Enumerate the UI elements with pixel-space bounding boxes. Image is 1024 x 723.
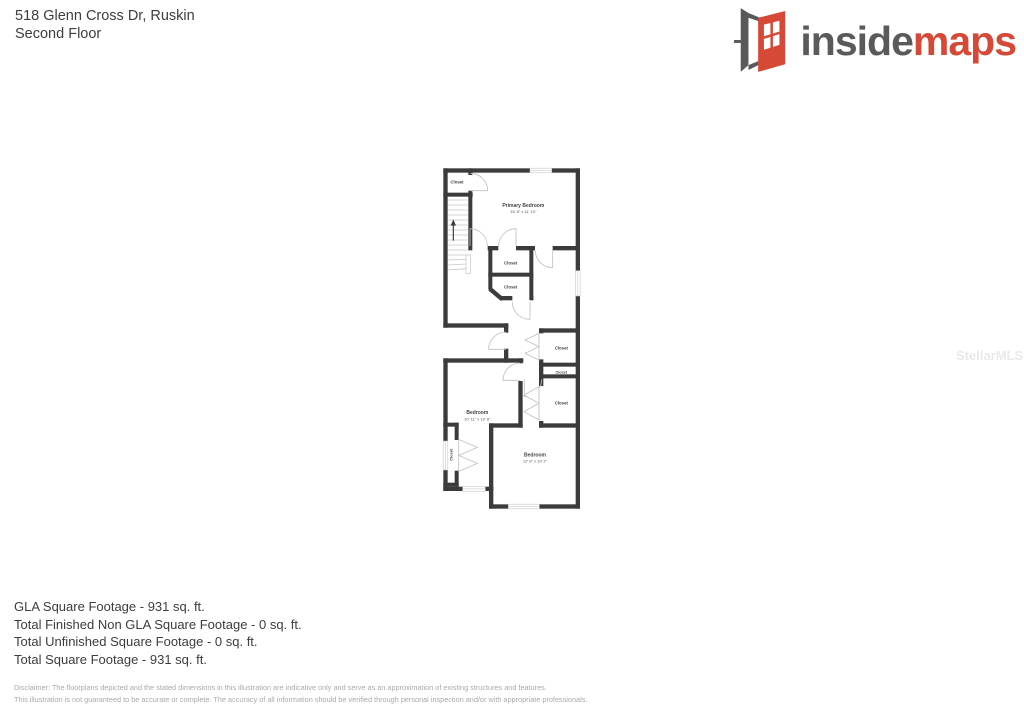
door-arc	[512, 302, 530, 319]
logo-text-maps: maps	[913, 18, 1016, 64]
logo-wordmark: insidemaps	[800, 21, 1016, 62]
address-line: 518 Glenn Cross Dr, Ruskin	[15, 8, 195, 26]
room-label-closet-top-left: Closet	[450, 180, 464, 185]
mls-watermark: StellarMLS	[956, 348, 1023, 363]
disclaimer-line-2: This illustration is not guaranteed to b…	[14, 694, 587, 706]
room-dims-bedroom-left: 10' 11" x 19' 8"	[464, 416, 491, 421]
disclaimer-line-1: Disclaimer: The floorplans depicted and …	[14, 682, 587, 694]
room-label-closet-right-2: Closet	[555, 370, 567, 374]
address-block: 518 Glenn Cross Dr, Ruskin Second Floor	[15, 8, 195, 43]
bifold-door	[525, 347, 539, 360]
door-arc	[470, 173, 487, 190]
logo-text-inside: inside	[800, 18, 912, 64]
bifold-door	[459, 439, 478, 455]
footage-line-unfinished: Total Unfinished Square Footage - 0 sq. …	[14, 633, 302, 651]
room-label-closet-right-3: Closet	[555, 401, 569, 406]
room-label-closet-right-1: Closet	[555, 345, 569, 350]
open-door-icon	[733, 6, 791, 76]
footage-summary: GLA Square Footage - 931 sq. ft. Total F…	[14, 598, 302, 668]
footage-line-gla: GLA Square Footage - 931 sq. ft.	[14, 598, 302, 616]
room-dims-primary-bedroom: 16' 8" x 11' 10"	[510, 209, 537, 214]
room-label-closet-mid-1: Closet	[504, 261, 518, 266]
room-label-closet-mid-2: Closet	[504, 285, 518, 290]
door-arc	[535, 250, 552, 267]
bifold-door	[525, 333, 539, 346]
door-arc	[489, 332, 506, 349]
room-label-closet-bedroom-left: Closet	[449, 448, 454, 461]
room-label-primary-bedroom: Primary Bedroom	[502, 203, 545, 209]
footage-line-non-gla: Total Finished Non GLA Square Footage - …	[14, 616, 302, 634]
room-dims-bedroom-right: 12' 9" x 19' 2"	[523, 459, 548, 464]
bifold-doors	[459, 333, 539, 471]
disclaimer: Disclaimer: The floorplans depicted and …	[14, 682, 587, 705]
insidemaps-logo: insidemaps	[733, 5, 1016, 77]
floorplan-page: 518 Glenn Cross Dr, Ruskin Second Floor …	[0, 0, 1024, 723]
door-arc	[503, 363, 520, 380]
stairs	[448, 200, 471, 273]
floorplan-svg: Closet Primary Bedroom 16' 8" x 11' 10" …	[420, 140, 620, 530]
floor-label: Second Floor	[15, 26, 195, 44]
bifold-door	[459, 455, 478, 471]
room-label-bedroom-right: Bedroom	[524, 452, 547, 458]
door-arc	[470, 229, 487, 246]
bifold-door	[524, 403, 539, 420]
bifold-door	[524, 387, 539, 404]
footage-line-total: Total Square Footage - 931 sq. ft.	[14, 651, 302, 669]
room-label-bedroom-left: Bedroom	[466, 410, 489, 416]
door-arc	[499, 229, 516, 246]
